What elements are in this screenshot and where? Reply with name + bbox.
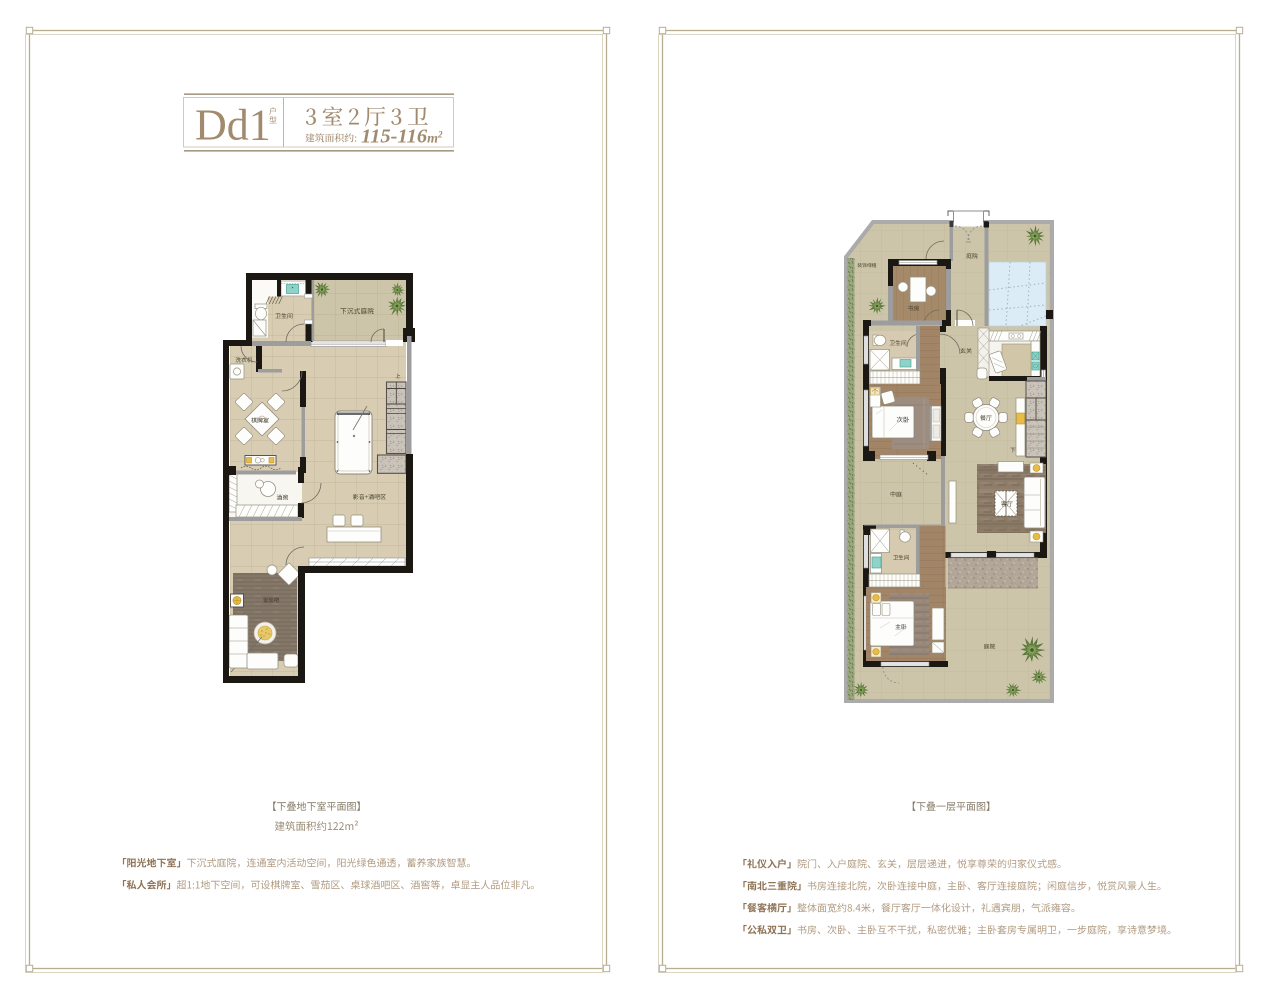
svg-text:115-116m2: 115-116m2 <box>361 126 443 148</box>
svg-text:Dd1: Dd1 <box>195 101 271 150</box>
